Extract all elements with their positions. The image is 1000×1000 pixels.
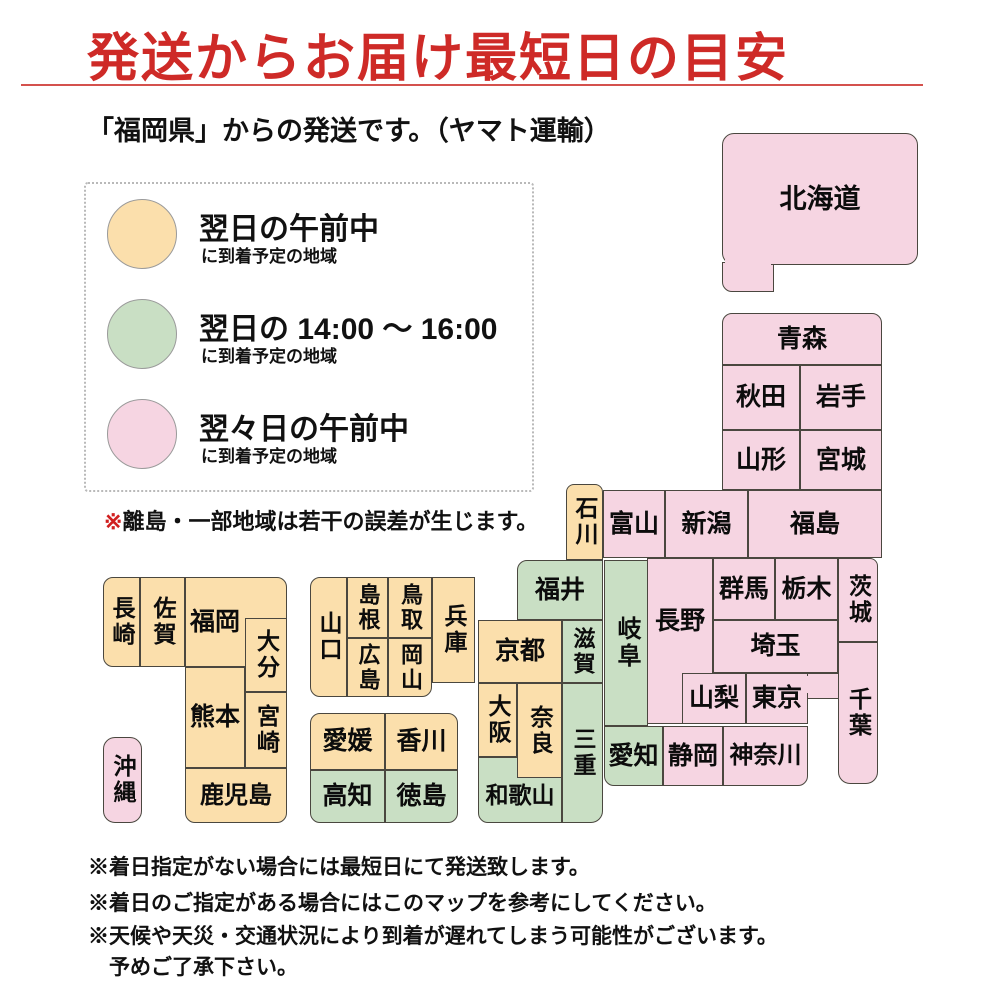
remote-islands-note: ※離島・一部地域は若干の誤差が生じます。 bbox=[104, 504, 538, 536]
prefecture-label: 千葉 bbox=[839, 643, 877, 783]
prefecture-kyoto: 京都 bbox=[478, 620, 562, 683]
prefecture-label: 岡山 bbox=[389, 639, 431, 696]
footnote-4: 予めご了承下さい。 bbox=[88, 951, 298, 981]
prefecture-label: 北海道 bbox=[723, 134, 917, 264]
prefecture-akita: 秋田 bbox=[722, 365, 800, 430]
prefecture-label: 岐阜 bbox=[605, 561, 647, 725]
prefecture-shimane: 島根 bbox=[347, 577, 388, 638]
prefecture-label: 東京 bbox=[747, 674, 807, 723]
prefecture-label: 愛媛 bbox=[311, 714, 384, 769]
prefecture-hiroshima: 広島 bbox=[347, 638, 388, 697]
prefecture-label: 広島 bbox=[348, 639, 387, 696]
delivery-map-infographic: 発送からお届け最短日の目安 「福岡県」からの発送です。（ヤマト運輸） 翌日の午前… bbox=[0, 0, 1000, 1000]
prefecture-label: 京都 bbox=[479, 621, 561, 682]
prefecture-label: 高知 bbox=[311, 771, 384, 822]
prefecture-kumamoto: 熊本 bbox=[185, 667, 245, 768]
legend-color-swatch-orange bbox=[107, 199, 177, 269]
legend-item-green: 翌日の 14:00 ～ 16:00に到着予定の地域 bbox=[107, 299, 507, 377]
prefecture-label: 群馬 bbox=[714, 559, 774, 619]
prefecture-label: 長崎 bbox=[104, 578, 139, 666]
legend-sublabel: に到着予定の地域 bbox=[201, 342, 337, 367]
prefecture-chiba: 千葉 bbox=[838, 642, 878, 784]
prefecture-label: 新潟 bbox=[666, 491, 747, 557]
prefecture-aomori: 青森 bbox=[722, 313, 882, 365]
prefecture-tottori: 鳥取 bbox=[388, 577, 432, 638]
prefecture-label: 青森 bbox=[723, 314, 881, 364]
prefecture-label: 宮崎 bbox=[246, 693, 286, 767]
prefecture-label: 香川 bbox=[386, 714, 457, 769]
prefecture-label: 福島 bbox=[749, 491, 881, 557]
prefecture-gifu: 岐阜 bbox=[604, 560, 648, 726]
tokyo-join-cover bbox=[804, 676, 812, 693]
prefecture-label: 富山 bbox=[604, 491, 664, 557]
prefecture-oita: 大分 bbox=[245, 618, 287, 692]
prefecture-label: 岩手 bbox=[801, 366, 881, 429]
prefecture-saitama: 埼玉 bbox=[713, 620, 838, 673]
prefecture-label: 宮城 bbox=[801, 431, 881, 489]
prefecture-nara: 奈良 bbox=[517, 683, 562, 778]
prefecture-label: 山梨 bbox=[683, 674, 745, 723]
prefecture-label: 栃木 bbox=[776, 559, 837, 619]
legend-color-swatch-pink bbox=[107, 399, 177, 469]
prefecture-shizuoka: 静岡 bbox=[663, 726, 723, 786]
prefecture-label: 茨城 bbox=[839, 559, 877, 641]
prefecture-label: 神奈川 bbox=[724, 727, 807, 785]
prefecture-shiga: 滋賀 bbox=[562, 620, 603, 683]
legend-color-swatch-green bbox=[107, 299, 177, 369]
note-text: 離島・一部地域は若干の誤差が生じます。 bbox=[122, 509, 538, 534]
legend-box: 翌日の午前中に到着予定の地域翌日の 14:00 ～ 16:00に到着予定の地域翌… bbox=[84, 182, 534, 492]
hokkaido-join-cover bbox=[725, 259, 771, 267]
prefecture-label: 福井 bbox=[518, 561, 602, 619]
prefecture-label: 鹿児島 bbox=[186, 769, 286, 822]
prefecture-okinawa: 沖縄 bbox=[103, 737, 142, 823]
prefecture-toyama: 富山 bbox=[603, 490, 665, 558]
page-title: 発送からお届け最短日の目安 bbox=[87, 16, 789, 91]
prefecture-ibaraki: 茨城 bbox=[838, 558, 878, 642]
prefecture-fukushima: 福島 bbox=[748, 490, 882, 558]
prefecture-niigata: 新潟 bbox=[665, 490, 748, 558]
prefecture-okayama: 岡山 bbox=[388, 638, 432, 697]
prefecture-label: 静岡 bbox=[664, 727, 722, 785]
legend-item-pink: 翌々日の午前中に到着予定の地域 bbox=[107, 399, 507, 477]
shipping-origin-subtitle: 「福岡県」からの発送です。（ヤマト運輸） bbox=[87, 109, 611, 148]
prefecture-tokyo: 東京 bbox=[746, 673, 808, 724]
prefecture-tochigi: 栃木 bbox=[775, 558, 838, 620]
prefecture-yamanashi: 山梨 bbox=[682, 673, 746, 724]
prefecture-gunma: 群馬 bbox=[713, 558, 775, 620]
footnote-3: ※天候や天災・交通状況により到着が遅れてしまう可能性がございます。 bbox=[88, 920, 778, 950]
prefecture-label: 佐賀 bbox=[141, 578, 184, 666]
prefecture-label: 大分 bbox=[246, 619, 286, 691]
prefecture-aichi: 愛知 bbox=[604, 726, 663, 786]
prefecture-ehime: 愛媛 bbox=[310, 713, 385, 770]
prefecture-hyogo: 兵庫 bbox=[432, 577, 475, 683]
prefecture-label: 埼玉 bbox=[714, 621, 837, 672]
prefecture-label: 沖縄 bbox=[104, 738, 141, 822]
prefecture-mie: 三重 bbox=[562, 683, 603, 823]
prefecture-miyazaki: 宮崎 bbox=[245, 692, 287, 768]
prefecture-kochi: 高知 bbox=[310, 770, 385, 823]
prefecture-saga: 佐賀 bbox=[140, 577, 185, 667]
prefecture-label: 熊本 bbox=[186, 668, 244, 767]
prefecture-miyagi: 宮城 bbox=[800, 430, 882, 490]
prefecture-label: 山形 bbox=[723, 431, 799, 489]
prefecture-label: 大阪 bbox=[479, 684, 516, 756]
footnote-1: ※着日指定がない場合には最短日にて発送致します。 bbox=[88, 851, 590, 881]
prefecture-label: 徳島 bbox=[386, 771, 457, 822]
prefecture-label: 愛知 bbox=[605, 727, 662, 785]
prefecture-yamaguchi: 山口 bbox=[310, 577, 347, 697]
prefecture-kanagawa: 神奈川 bbox=[723, 726, 808, 786]
prefecture-osaka: 大阪 bbox=[478, 683, 517, 757]
prefecture-label: 秋田 bbox=[723, 366, 799, 429]
prefecture-label: 鳥取 bbox=[389, 578, 431, 637]
prefecture-label: 福岡 bbox=[186, 578, 244, 666]
prefecture-nagasaki: 長崎 bbox=[103, 577, 140, 667]
prefecture-ishikawa: 石川 bbox=[566, 484, 603, 560]
prefecture-iwate: 岩手 bbox=[800, 365, 882, 430]
prefecture-kagoshima: 鹿児島 bbox=[185, 768, 287, 823]
footnote-2: ※着日のご指定がある場合にはこのマップを参考にしてください。 bbox=[88, 887, 717, 917]
prefecture-yamagata: 山形 bbox=[722, 430, 800, 490]
prefecture-label: 石川 bbox=[567, 485, 602, 559]
prefecture-label: 兵庫 bbox=[433, 578, 474, 682]
note-asterisk: ※ bbox=[104, 509, 122, 534]
legend-sublabel: に到着予定の地域 bbox=[201, 442, 337, 467]
prefecture-tokushima: 徳島 bbox=[385, 770, 458, 823]
prefecture-label: 三重 bbox=[563, 684, 602, 822]
prefecture-label: 島根 bbox=[348, 578, 387, 637]
prefecture-kagawa: 香川 bbox=[385, 713, 458, 770]
legend-item-orange: 翌日の午前中に到着予定の地域 bbox=[107, 199, 507, 277]
title-underline bbox=[21, 84, 923, 86]
prefecture-label: 滋賀 bbox=[563, 621, 602, 682]
prefecture-label: 奈良 bbox=[518, 684, 561, 777]
legend-sublabel: に到着予定の地域 bbox=[201, 242, 337, 267]
prefecture-label: 長野 bbox=[648, 559, 712, 684]
prefecture-hokkaido: 北海道 bbox=[722, 133, 918, 265]
prefecture-fukui: 福井 bbox=[517, 560, 603, 620]
prefecture-label: 山口 bbox=[311, 578, 346, 696]
